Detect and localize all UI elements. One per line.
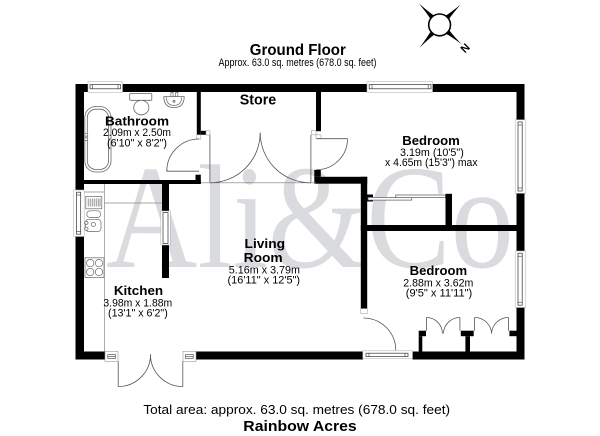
svg-text:x 4.65m (15'3") max: x 4.65m (15'3") max	[385, 157, 478, 169]
svg-text:Kitchen: Kitchen	[114, 283, 163, 298]
svg-text:(6'10" x 8'2"): (6'10" x 8'2")	[107, 137, 167, 149]
svg-text:Store: Store	[240, 93, 277, 109]
svg-text:(16'11" x 12'5"): (16'11" x 12'5")	[228, 274, 301, 286]
svg-text:Bedroom: Bedroom	[410, 263, 468, 278]
svg-text:(9'5" x 11'11"): (9'5" x 11'11")	[406, 288, 473, 300]
svg-text:Rainbow Acres: Rainbow Acres	[243, 418, 356, 435]
svg-text:Total area: approx. 63.0 sq. m: Total area: approx. 63.0 sq. metres (678…	[143, 403, 450, 417]
svg-text:Approx. 63.0 sq. metres (678.0: Approx. 63.0 sq. metres (678.0 sq. feet)	[219, 57, 377, 69]
svg-text:Bedroom: Bedroom	[402, 133, 460, 148]
svg-text:(13'1" x 6'2"): (13'1" x 6'2")	[108, 308, 168, 320]
svg-text:Room: Room	[244, 250, 283, 265]
